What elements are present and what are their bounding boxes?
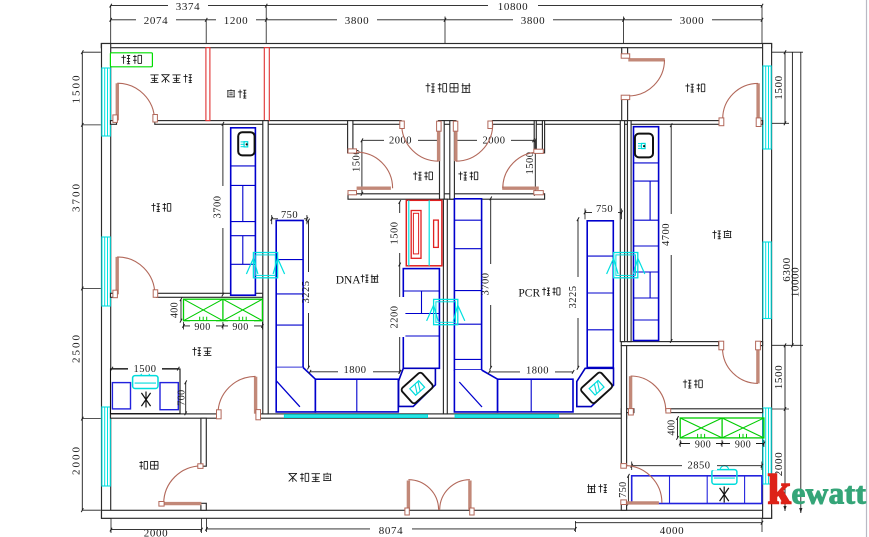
svg-text:3374: 3374 <box>176 1 200 13</box>
svg-text:3800: 3800 <box>521 15 545 27</box>
svg-text:k: k <box>768 468 792 514</box>
svg-text:3000: 3000 <box>680 15 704 27</box>
svg-text:1500: 1500 <box>773 75 785 99</box>
svg-text:DNA: DNA <box>336 274 362 286</box>
svg-text:10000: 10000 <box>790 267 802 298</box>
svg-text:2000: 2000 <box>389 135 412 146</box>
svg-text:1800: 1800 <box>526 365 549 376</box>
svg-text:1800: 1800 <box>344 365 367 376</box>
svg-text:1500: 1500 <box>70 74 82 104</box>
svg-text:900: 900 <box>194 322 210 333</box>
svg-text:1500: 1500 <box>389 222 400 245</box>
svg-text:750: 750 <box>281 210 298 221</box>
svg-text:2500: 2500 <box>70 333 82 363</box>
svg-text:750: 750 <box>596 204 613 215</box>
svg-text:3700: 3700 <box>70 182 82 212</box>
svg-text:1500: 1500 <box>773 365 785 389</box>
svg-text:4000: 4000 <box>660 525 684 537</box>
svg-text:900: 900 <box>735 440 751 451</box>
svg-text:900: 900 <box>695 440 711 451</box>
svg-text:3700: 3700 <box>481 273 492 296</box>
svg-text:ewatt: ewatt <box>792 476 867 511</box>
svg-text:2000: 2000 <box>144 528 168 537</box>
svg-text:3225: 3225 <box>568 286 579 309</box>
svg-text:2850: 2850 <box>688 461 711 472</box>
svg-text:3800: 3800 <box>345 15 369 27</box>
svg-text:400: 400 <box>666 419 677 435</box>
svg-text:3700: 3700 <box>213 196 224 219</box>
svg-text:2074: 2074 <box>144 15 168 27</box>
svg-text:1200: 1200 <box>224 15 248 27</box>
svg-text:2000: 2000 <box>70 445 82 475</box>
svg-text:8074: 8074 <box>379 525 403 537</box>
svg-text:PCR: PCR <box>518 287 540 299</box>
svg-text:4700: 4700 <box>661 223 672 246</box>
svg-text:700: 700 <box>177 389 188 405</box>
svg-text:3225: 3225 <box>301 281 312 304</box>
svg-text:750: 750 <box>618 481 629 497</box>
svg-text:10800: 10800 <box>498 1 529 13</box>
svg-text:1500: 1500 <box>134 364 157 375</box>
svg-text:400: 400 <box>170 302 181 318</box>
svg-text:900: 900 <box>232 322 248 333</box>
svg-text:2200: 2200 <box>389 306 400 329</box>
svg-text:1500: 1500 <box>525 152 536 175</box>
